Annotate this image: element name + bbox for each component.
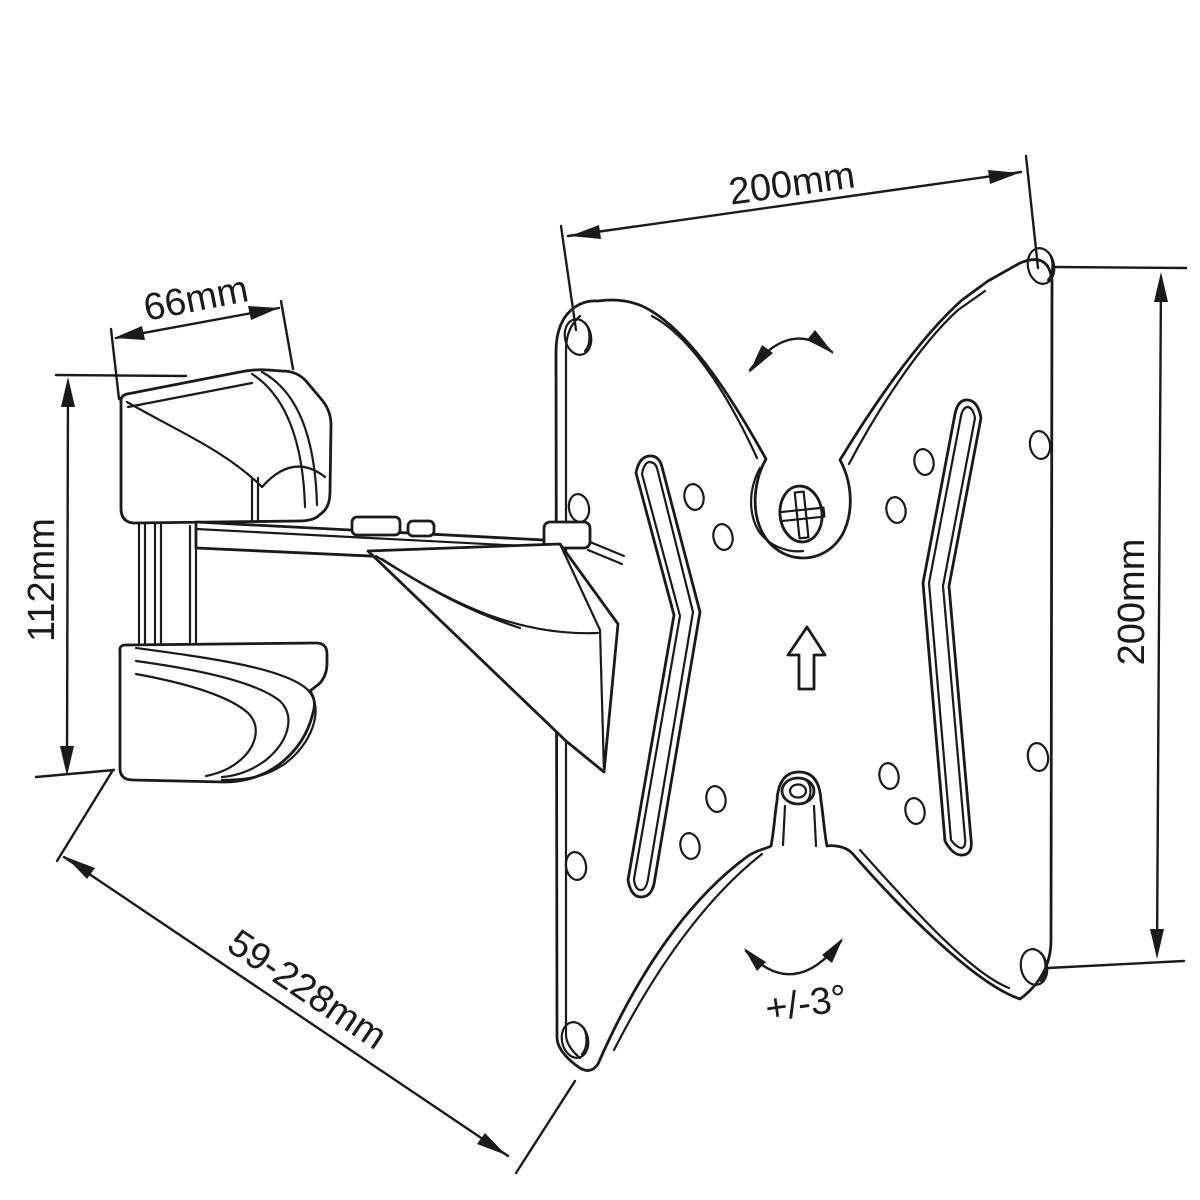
bracket-width-label: 66mm bbox=[140, 268, 252, 329]
tilt-arrow-icon bbox=[744, 938, 843, 974]
wall-bracket-top-block bbox=[121, 370, 331, 523]
technical-drawing-canvas: 200mm 200mm 66mm 112mm 59-228mm +/-3° bbox=[0, 0, 1200, 1200]
wall-mount-diagram: 200mm 200mm 66mm 112mm 59-228mm +/-3° bbox=[0, 0, 1200, 1200]
extension-range-label: 59-228mm bbox=[220, 922, 394, 1058]
dimension-line bbox=[64, 857, 508, 1156]
dimension-line bbox=[67, 385, 68, 768]
tilt-pivot-bolt bbox=[782, 778, 814, 804]
vesa-width-label: 200mm bbox=[726, 154, 857, 213]
pivot-notch-walls bbox=[783, 806, 816, 846]
swivel-arrow-icon bbox=[749, 330, 834, 373]
vesa-height-label: 200mm bbox=[1111, 539, 1153, 666]
wall-bracket-neck bbox=[139, 524, 196, 643]
arm-clip-tab-2 bbox=[408, 521, 434, 536]
locking-screw bbox=[777, 484, 827, 544]
arm-clip-tab-1 bbox=[352, 517, 400, 535]
annotation-tilt-angle: +/-3° bbox=[763, 978, 850, 1031]
dimension-extension-range: 59-228mm bbox=[57, 770, 575, 1173]
wall-bracket bbox=[120, 370, 331, 782]
vesa-plate bbox=[556, 260, 1052, 1071]
tilt-angle-label: +/-3° bbox=[763, 978, 850, 1031]
dimension-vesa-height: 200mm bbox=[1048, 267, 1186, 968]
vesa-plate-outline bbox=[556, 260, 1052, 1071]
dimension-line bbox=[1157, 278, 1161, 953]
arm-elbow-wedge bbox=[368, 544, 618, 772]
bracket-height-label: 112mm bbox=[21, 518, 63, 642]
